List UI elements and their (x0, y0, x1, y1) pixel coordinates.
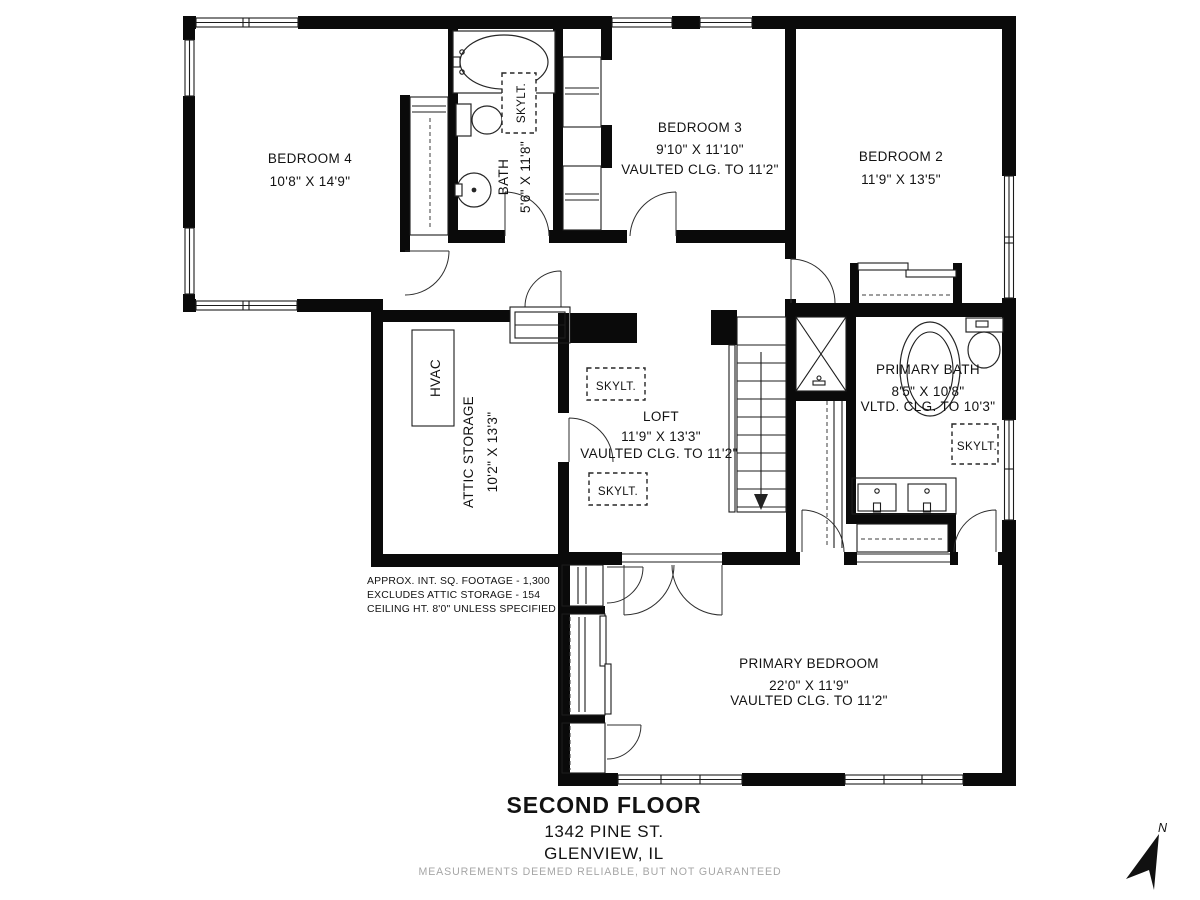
bedroom4-name: BEDROOM 4 (268, 151, 352, 166)
bedroom2-closet (858, 263, 956, 295)
floorplan-drawing: BEDROOM 4 10'8" X 14'9" BATH 5'6" X 11'8… (0, 0, 1200, 900)
north-arrow-icon (1126, 834, 1159, 890)
skylight-label-loft-2: SKYLT. (598, 485, 638, 498)
floorplan-page: BEDROOM 4 10'8" X 14'9" BATH 5'6" X 11'8… (0, 0, 1200, 900)
stair-railing (729, 345, 735, 512)
linen-closets (563, 57, 601, 230)
note-line-3: CEILING HT. 8'0" UNLESS SPECIFIED (367, 604, 556, 615)
sq-footage-notes: APPROX. INT. SQ. FOOTAGE - 1,300 EXCLUDE… (367, 576, 556, 615)
primary-bath-dims: 8'5" X 10'8" (892, 384, 965, 399)
primary-vanity (852, 478, 956, 514)
bedroom4-closet (410, 97, 448, 235)
primary-shower (796, 317, 846, 391)
bedroom2-dims: 11'9" X 13'5" (861, 172, 941, 187)
skylight-label-primary-bath: SKYLT. (957, 440, 997, 453)
bedroom3-ceiling: VAULTED CLG. TO 11'2" (621, 162, 779, 177)
address-line: 1342 PINE ST. (544, 822, 663, 841)
stair-down-arrow (754, 352, 768, 510)
bedroom4-dims: 10'8" X 14'9" (270, 174, 351, 189)
north-arrow: N (1126, 821, 1168, 890)
attic-name: ATTIC STORAGE (461, 396, 476, 508)
bath-name: BATH (496, 159, 511, 195)
city-line: GLENVIEW, IL (544, 844, 664, 863)
skylights (502, 73, 998, 505)
floor-title: SECOND FLOOR (507, 792, 702, 818)
bedroom3-dims: 9'10" X 11'10" (656, 142, 744, 157)
bath-dims: 5'6" X 11'8" (518, 141, 533, 213)
hall-closet (510, 307, 570, 343)
bedroom2-name: BEDROOM 2 (859, 149, 943, 164)
skylight-label-bath: SKYLT. (515, 83, 528, 123)
primary-top-closet (857, 524, 950, 562)
walkin-closet (827, 401, 842, 548)
skylight-label-loft-1: SKYLT. (596, 380, 636, 393)
note-line-1: APPROX. INT. SQ. FOOTAGE - 1,300 (367, 576, 550, 587)
north-label: N (1158, 821, 1168, 835)
disclaimer-text: MEASUREMENTS DEEMED RELIABLE, BUT NOT GU… (418, 866, 781, 878)
primary-bedroom-name: PRIMARY BEDROOM (739, 656, 879, 671)
primary-bath-ceiling: VLTD. CLG. TO 10'3" (861, 399, 996, 414)
loft-name: LOFT (643, 409, 679, 424)
loft-ceiling: VAULTED CLG. TO 11'2" (580, 446, 738, 461)
primary-bedroom-ceiling: VAULTED CLG. TO 11'2" (730, 693, 888, 708)
hall-toilet (456, 104, 502, 136)
staircase (729, 317, 786, 512)
title-block: SECOND FLOOR 1342 PINE ST. GLENVIEW, IL … (418, 792, 781, 878)
loft-dims: 11'9" X 13'3" (621, 429, 701, 444)
hvac-label: HVAC (428, 359, 443, 397)
primary-bedroom-dims: 22'0" X 11'9" (769, 678, 849, 693)
hall-sink (455, 173, 491, 207)
attic-dims: 10'2" X 13'3" (485, 412, 500, 493)
bedroom3-name: BEDROOM 3 (658, 120, 742, 135)
primary-bath-name: PRIMARY BATH (876, 362, 980, 377)
primary-toilet (966, 318, 1003, 368)
note-line-2: EXCLUDES ATTIC STORAGE - 154 (367, 590, 540, 601)
